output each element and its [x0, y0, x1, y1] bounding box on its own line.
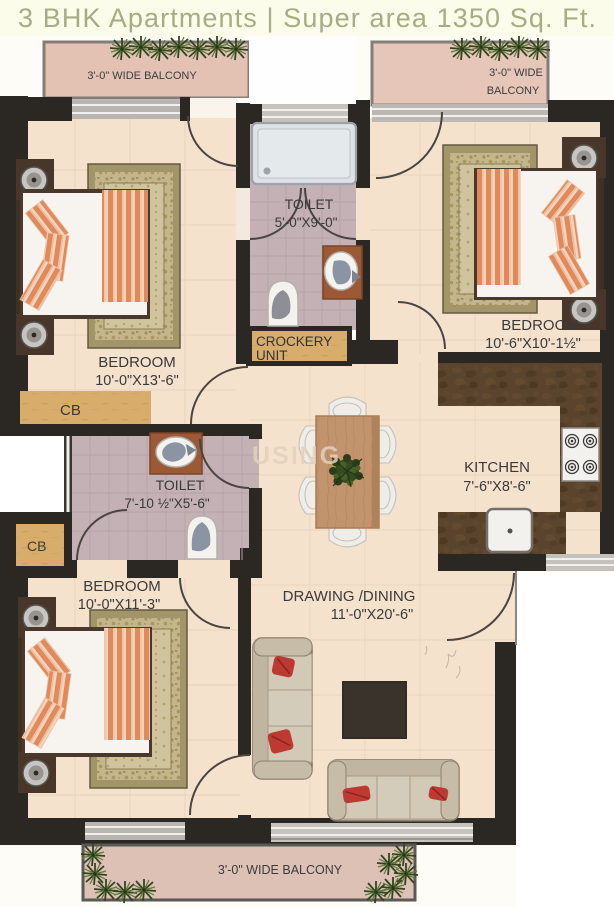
- svg-text:10'-0"X13'-6": 10'-0"X13'-6": [95, 373, 179, 389]
- svg-text:10'-6"X10'-1½": 10'-6"X10'-1½": [485, 336, 581, 352]
- svg-text:KITCHEN: KITCHEN: [464, 459, 530, 476]
- svg-text:UNIT: UNIT: [256, 348, 288, 363]
- svg-text:BEDROOM: BEDROOM: [98, 354, 176, 371]
- svg-text:3 BHK Apartments | Super are: 3 BHK Apartments | Super area 1350 Sq. F…: [18, 3, 596, 33]
- svg-text:BEDROOM: BEDROOM: [83, 578, 161, 595]
- svg-text:TOILET: TOILET: [285, 196, 334, 212]
- svg-text:DRAWING /DINING: DRAWING /DINING: [283, 588, 416, 605]
- svg-text:TOILET: TOILET: [156, 477, 205, 493]
- svg-text:10'-0"X11'-3": 10'-0"X11'-3": [78, 597, 160, 613]
- svg-text:7'-6"X8'-6": 7'-6"X8'-6": [463, 479, 530, 495]
- svg-text:USING: USING: [252, 442, 341, 470]
- svg-text:BALCONY: BALCONY: [487, 85, 540, 97]
- svg-text:5'-0"X9'-0": 5'-0"X9'-0": [275, 215, 338, 230]
- svg-text:CROCKERY: CROCKERY: [256, 334, 332, 349]
- svg-text:CB: CB: [60, 402, 81, 419]
- svg-text:3'-0" WIDE BALCONY: 3'-0" WIDE BALCONY: [218, 863, 343, 877]
- svg-text:CB: CB: [27, 538, 46, 554]
- svg-text:3'-0" WIDE: 3'-0" WIDE: [489, 67, 543, 79]
- svg-text:7'-10 ½"X5'-6": 7'-10 ½"X5'-6": [124, 496, 209, 511]
- svg-text:11'-0"X20'-6": 11'-0"X20'-6": [331, 607, 413, 623]
- svg-text:3'-0" WIDE BALCONY: 3'-0" WIDE BALCONY: [87, 70, 197, 82]
- svg-text:BEDROOM: BEDROOM: [501, 317, 579, 334]
